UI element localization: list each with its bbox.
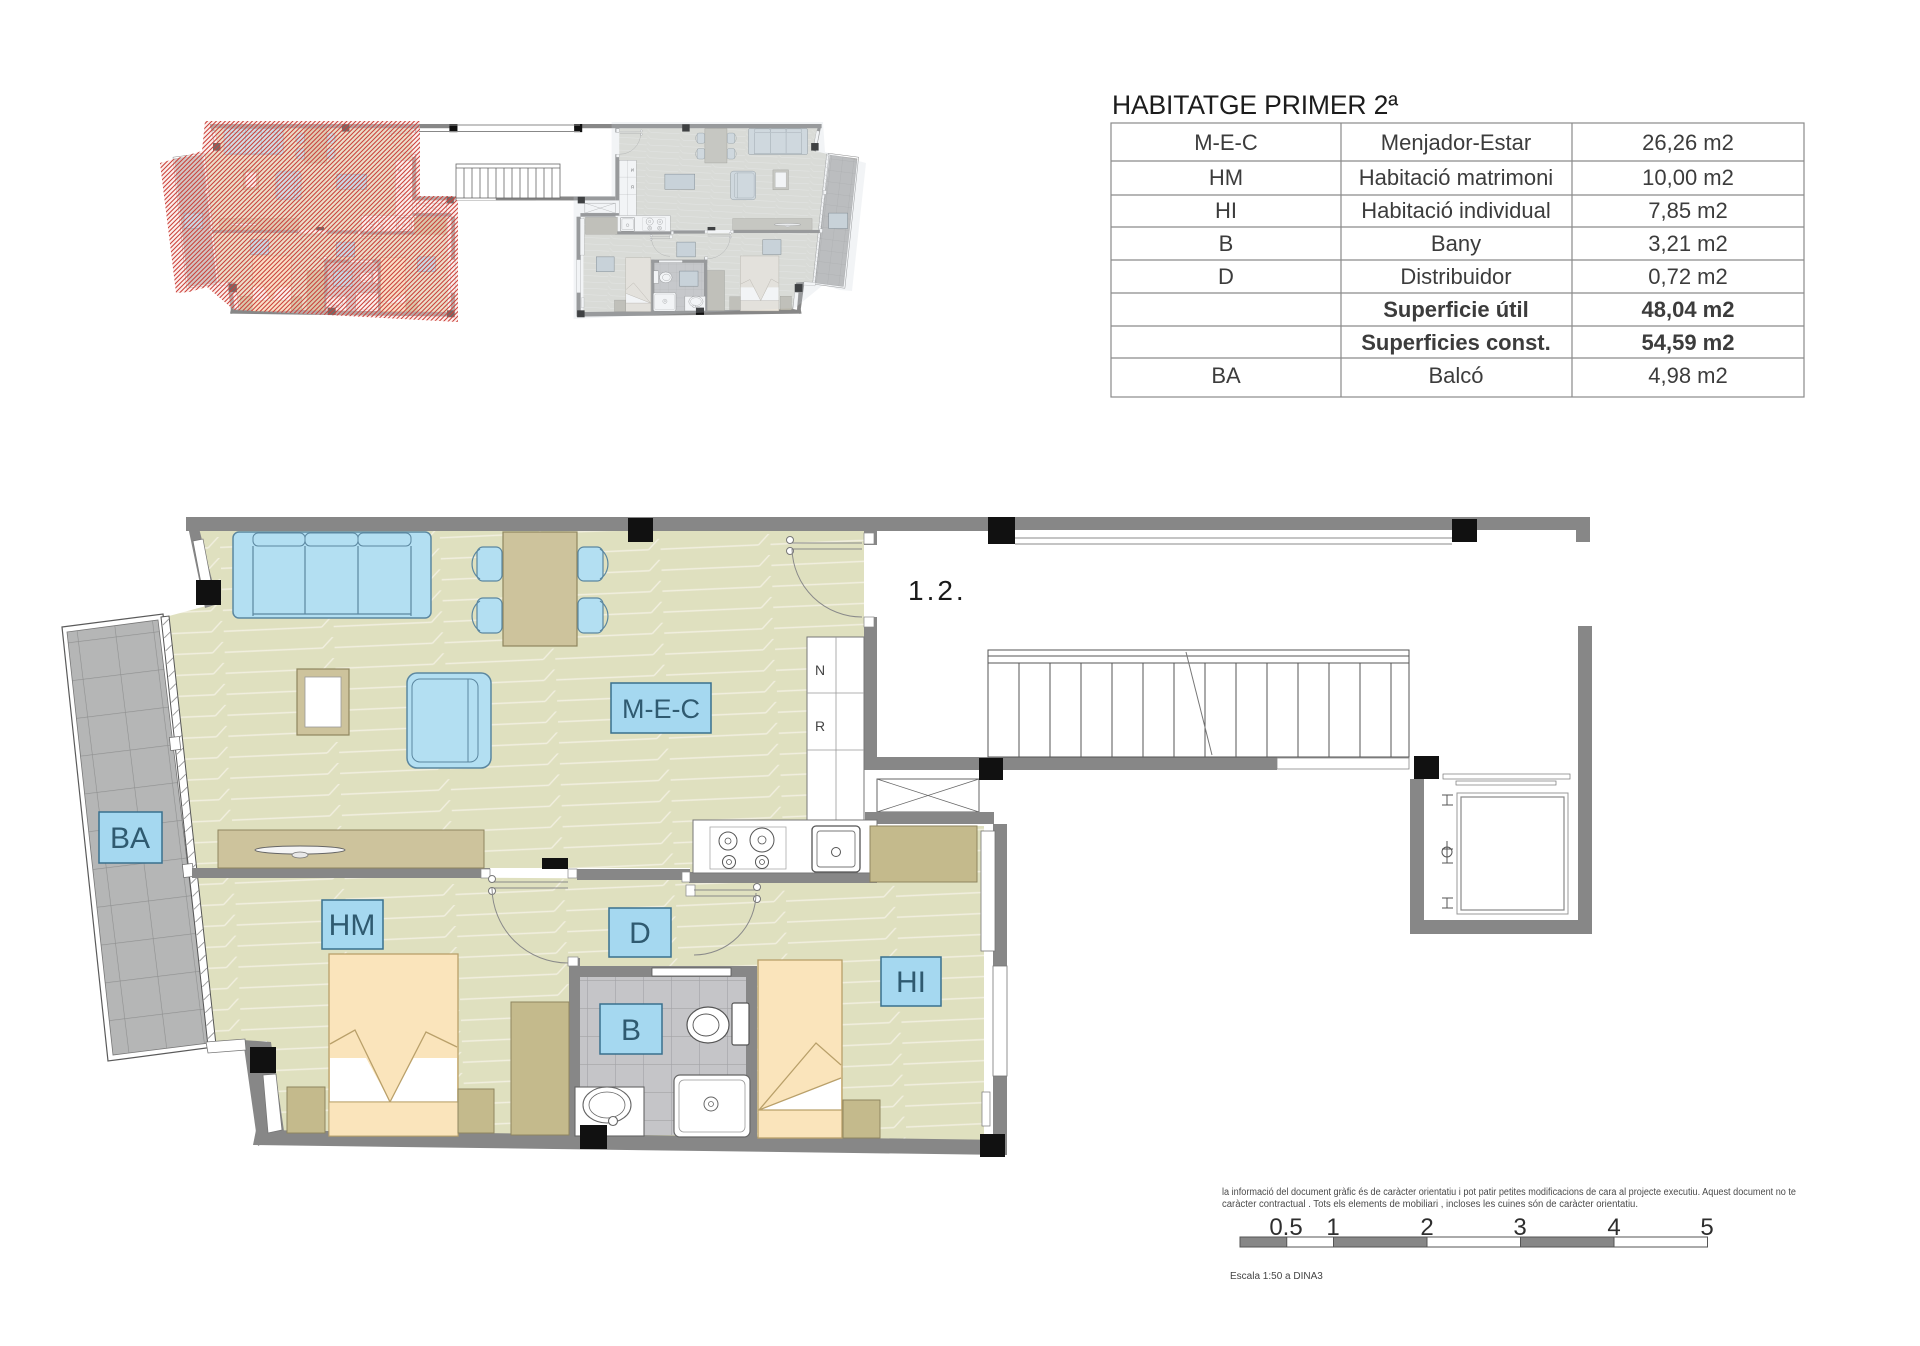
svg-text:1: 1 [1326,1214,1339,1241]
svg-text:54,59 m2: 54,59 m2 [1642,330,1735,355]
svg-text:B: B [1219,231,1234,256]
svg-text:3: 3 [1513,1214,1526,1241]
svg-text:7,85 m2: 7,85 m2 [1648,198,1728,223]
svg-text:48,04 m2: 48,04 m2 [1642,297,1735,322]
svg-text:1.2.: 1.2. [908,575,967,606]
svg-text:0,72 m2: 0,72 m2 [1648,264,1728,289]
svg-text:HI: HI [1215,198,1237,223]
svg-text:BA: BA [1211,363,1241,388]
svg-text:Menjador-Estar: Menjador-Estar [1381,130,1531,155]
svg-text:D: D [629,917,651,950]
svg-text:D: D [1218,264,1234,289]
svg-text:la informació del document grà: la informació del document gràfic és de … [1222,1187,1796,1198]
svg-text:Habitació matrimoni: Habitació matrimoni [1359,165,1553,190]
svg-text:Habitació individual: Habitació individual [1361,198,1551,223]
svg-text:Balcó: Balcó [1428,363,1483,388]
svg-text:Bany: Bany [1431,231,1481,256]
svg-text:B: B [621,1014,641,1047]
svg-text:HM: HM [329,909,376,942]
svg-text:4: 4 [1607,1214,1620,1241]
svg-text:HABITATGE PRIMER 2ª: HABITATGE PRIMER 2ª [1112,90,1398,120]
svg-text:2: 2 [1420,1214,1433,1241]
svg-text:HM: HM [1209,165,1243,190]
svg-text:26,26 m2: 26,26 m2 [1642,130,1734,155]
svg-text:0.5: 0.5 [1269,1214,1302,1241]
svg-text:caràcter contractual . Tots el: caràcter contractual . Tots els elements… [1222,1199,1638,1210]
svg-text:10,00 m2: 10,00 m2 [1642,165,1734,190]
svg-text:HI: HI [896,966,926,999]
svg-text:BA: BA [110,822,150,855]
svg-text:Distribuidor: Distribuidor [1400,264,1511,289]
svg-text:Superficie útil: Superficie útil [1383,297,1528,322]
svg-text:M-E-C: M-E-C [622,694,700,724]
svg-text:M-E-C: M-E-C [1194,130,1258,155]
svg-text:4,98 m2: 4,98 m2 [1648,363,1728,388]
svg-text:Escala 1:50 a DINA3: Escala 1:50 a DINA3 [1230,1271,1323,1282]
svg-text:Superficies const.: Superficies const. [1361,330,1551,355]
svg-text:3,21 m2: 3,21 m2 [1648,231,1728,256]
svg-text:5: 5 [1700,1214,1713,1241]
